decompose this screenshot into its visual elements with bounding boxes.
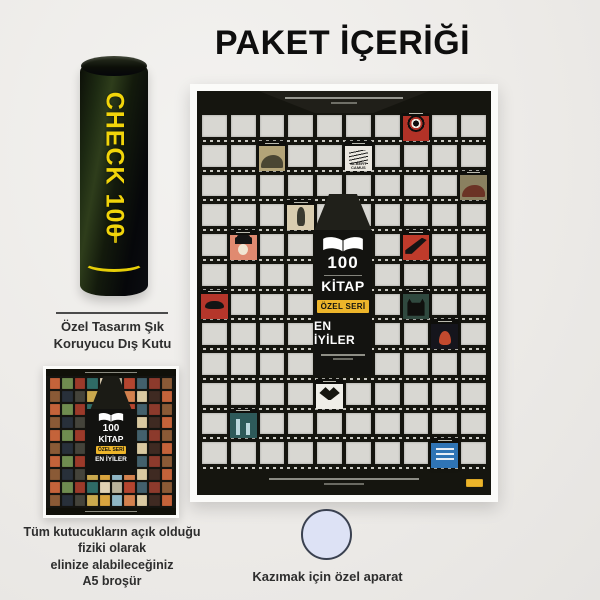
brochure-book-cell	[62, 482, 72, 493]
scratch-poster: ALBERT CAMUS 100 KİTAP ÖZEL SERİ EN İYİL…	[190, 84, 498, 502]
brochure-book-cell	[137, 391, 147, 402]
scratch-box	[202, 264, 227, 286]
scratch-box	[404, 145, 429, 167]
brochure-title-block: 100 KİTAP ÖZEL SERİ EN İYİLER	[86, 409, 135, 475]
footer-text-line	[269, 478, 419, 480]
poster-title-block: 100 KİTAP ÖZEL SERİ EN İYİLER	[314, 230, 372, 376]
scratch-box	[432, 145, 457, 167]
brochure-book-cell	[162, 469, 172, 480]
brochure-book-cell	[100, 495, 110, 506]
scratch-box	[461, 204, 486, 226]
book-cover-label: ALBERT CAMUS	[345, 162, 372, 170]
brochure-book-cell	[50, 495, 60, 506]
brochure-book-cell	[87, 482, 97, 493]
scratch-box	[461, 145, 486, 167]
brochure-book-cell	[100, 482, 110, 493]
brochure-book-cell	[50, 404, 60, 415]
scratch-box	[432, 264, 457, 286]
book-cover-header	[431, 438, 458, 443]
brochure-book-cell	[149, 456, 159, 467]
scratch-box	[404, 323, 429, 345]
scratch-box	[317, 115, 342, 137]
brochure-book-cell	[137, 430, 147, 441]
brochure-book-cell	[62, 404, 72, 415]
revealed-book-cover: ALBERT CAMUS	[345, 141, 372, 171]
brochure-book-cell	[50, 469, 60, 480]
scratch-box	[404, 264, 429, 286]
brochure-book-cell	[149, 391, 159, 402]
scratch-tool	[301, 509, 352, 560]
brochure-book-cell	[137, 378, 147, 389]
scratch-box	[202, 323, 227, 345]
scratch-box	[317, 175, 342, 197]
brochure-book-cell	[162, 430, 172, 441]
poster-row	[202, 113, 486, 139]
scratch-box	[202, 115, 227, 137]
protective-tube: CHECK 100	[80, 58, 148, 296]
quote-text-line	[285, 97, 403, 99]
revealed-book-cover	[431, 438, 458, 468]
scratch-box	[231, 175, 256, 197]
revealed-book-cover	[403, 230, 430, 260]
scratch-box	[231, 145, 256, 167]
brochure-book-cell	[162, 404, 172, 415]
brochure-book-cell	[50, 482, 60, 493]
scratch-box	[202, 353, 227, 375]
brochure-book-cell	[137, 404, 147, 415]
scratch-box	[375, 323, 400, 345]
scratch-box	[260, 383, 285, 405]
scratch-box	[231, 264, 256, 286]
brochure-title-number: 100	[103, 423, 120, 434]
poster-quote-banner	[197, 91, 491, 113]
scratch-box	[317, 413, 342, 435]
brochure-book-cell	[75, 469, 85, 480]
tube-small-print	[114, 227, 117, 243]
brochure-book-cell	[62, 430, 72, 441]
scratch-box	[260, 323, 285, 345]
poster-footer	[197, 470, 491, 495]
a5-brochure: 100 KİTAP ÖZEL SERİ EN İYİLER	[43, 366, 179, 518]
scratch-box	[432, 294, 457, 316]
scratch-box	[202, 413, 227, 435]
brochure-book-cell	[149, 443, 159, 454]
brochure-book-cell	[62, 378, 72, 389]
scratch-box	[461, 353, 486, 375]
brochure-book-cell	[137, 495, 147, 506]
scratch-box	[260, 353, 285, 375]
brochure-book-cell	[162, 391, 172, 402]
brochure-book-cell	[149, 469, 159, 480]
scratch-box	[461, 294, 486, 316]
scratch-box	[432, 353, 457, 375]
scratch-box	[461, 442, 486, 464]
scratch-box	[461, 234, 486, 256]
scratch-box	[288, 323, 313, 345]
brochure-book-cell	[124, 482, 134, 493]
scratch-box	[375, 145, 400, 167]
brochure-book-cell	[149, 417, 159, 428]
scratch-box	[260, 264, 285, 286]
poster-row	[202, 411, 486, 437]
scratch-box	[432, 115, 457, 137]
brochure-book-cell	[162, 482, 172, 493]
brochure-caption-line-4: A5 broşür	[8, 573, 216, 589]
banner-trapezoid	[197, 91, 491, 113]
scratch-box	[288, 383, 313, 405]
poster-subtitle: EN İYİLER	[314, 319, 372, 347]
footer-text-line-2	[324, 483, 364, 485]
book-cover-header	[431, 319, 458, 324]
book-cover-header	[460, 171, 487, 176]
revealed-book-cover	[316, 379, 343, 409]
brochure-book-cell	[75, 456, 85, 467]
scratch-box	[461, 115, 486, 137]
scratch-box	[231, 294, 256, 316]
book-cover-header	[345, 141, 372, 146]
scratch-box	[432, 234, 457, 256]
brochure-book-cell	[137, 443, 147, 454]
scratch-box	[231, 353, 256, 375]
brochure-book-cell	[75, 391, 85, 402]
title-divider	[324, 275, 362, 276]
book-cover-header	[230, 409, 257, 414]
scratch-box	[375, 115, 400, 137]
brochure-subtitle: EN İYİLER	[95, 456, 127, 463]
tube-yellow-ring	[83, 253, 145, 272]
scratch-box	[231, 383, 256, 405]
revealed-book-cover	[230, 230, 257, 260]
scratch-box	[461, 264, 486, 286]
revealed-book-cover	[259, 141, 286, 171]
scratch-box	[231, 323, 256, 345]
product-showcase: PAKET İÇERİĞİ CHECK 100 Özel Tasarım Şık…	[0, 0, 600, 600]
brochure-caption-line-3: elinize alabileceğiniz	[8, 557, 216, 573]
book-cover-header	[316, 379, 343, 384]
poster-title-word: KİTAP	[321, 278, 364, 295]
brochure-book-cell	[62, 443, 72, 454]
scratch-box	[288, 115, 313, 137]
ozel-seri-badge: ÖZEL SERİ	[317, 300, 370, 313]
scratch-box	[346, 442, 371, 464]
scratch-box	[202, 234, 227, 256]
tube-caption-line-2: Koruyucu Dış Kutu	[20, 336, 205, 353]
poster-row	[202, 440, 486, 466]
brochure-book-cell	[50, 378, 60, 389]
brochure-book-cell	[75, 404, 85, 415]
brochure-book-cell	[137, 417, 147, 428]
tagline-line	[321, 354, 365, 356]
scratch-box	[461, 323, 486, 345]
brochure-book-cell	[149, 482, 159, 493]
revealed-book-cover	[403, 111, 430, 141]
scratch-box	[288, 234, 313, 256]
brochure-book-cell	[75, 495, 85, 506]
scratch-box	[404, 353, 429, 375]
brochure-book-cell	[62, 495, 72, 506]
tube-body: CHECK 100	[80, 58, 148, 296]
revealed-book-cover	[431, 319, 458, 349]
scratch-box	[260, 413, 285, 435]
poster-row	[202, 381, 486, 407]
brochure-book-cell	[124, 495, 134, 506]
scratch-box	[432, 175, 457, 197]
scratch-box	[260, 175, 285, 197]
revealed-book-cover	[403, 290, 430, 320]
scratch-box	[404, 175, 429, 197]
brochure-book-cell	[50, 456, 60, 467]
brochure-book-cell	[75, 482, 85, 493]
brochure-book-cell	[62, 417, 72, 428]
scratch-box	[260, 294, 285, 316]
scratch-box	[260, 234, 285, 256]
brochure-book-cell	[75, 417, 85, 428]
tube-cap	[81, 56, 147, 76]
poster-title-number: 100	[327, 253, 358, 273]
publisher-logo	[466, 479, 483, 487]
scratch-box	[346, 383, 371, 405]
scratch-box	[231, 442, 256, 464]
brochure-book-cell	[62, 469, 72, 480]
revealed-book-cover	[460, 171, 487, 201]
scratch-box	[260, 115, 285, 137]
scratch-box	[288, 175, 313, 197]
tube-caption: Özel Tasarım Şık Koruyucu Dış Kutu	[20, 319, 205, 353]
scratch-box	[288, 413, 313, 435]
brochure-book-cell	[149, 404, 159, 415]
brochure-book-cell	[149, 430, 159, 441]
scratch-box	[375, 442, 400, 464]
scratch-box	[461, 413, 486, 435]
scratch-box	[260, 442, 285, 464]
scratch-box	[317, 442, 342, 464]
scratch-box	[375, 353, 400, 375]
tube-label: CHECK 100	[100, 92, 129, 239]
brochure-book-cell	[137, 469, 147, 480]
brochure-book-cell	[62, 391, 72, 402]
scratch-box	[346, 175, 371, 197]
revealed-book-cover	[201, 290, 228, 320]
brochure-poster: 100 KİTAP ÖZEL SERİ EN İYİLER	[46, 369, 176, 515]
scratch-box	[432, 383, 457, 405]
revealed-book-cover	[230, 409, 257, 439]
scratch-box	[432, 204, 457, 226]
brochure-book-cell	[149, 378, 159, 389]
scratch-box	[231, 204, 256, 226]
book-cover-header	[201, 290, 228, 295]
brochure-book-cell	[50, 430, 60, 441]
book-cover-header	[403, 290, 430, 295]
book-cover-header	[287, 200, 314, 205]
scratch-box	[288, 145, 313, 167]
brochure-book-cell	[162, 456, 172, 467]
scratch-box	[404, 413, 429, 435]
page-title: PAKET İÇERİĞİ	[185, 24, 500, 63]
scratch-box	[288, 264, 313, 286]
scratch-box	[404, 204, 429, 226]
scratch-box	[375, 264, 400, 286]
scratch-box	[346, 413, 371, 435]
scratch-box	[461, 383, 486, 405]
quote-attribution-line	[331, 102, 357, 104]
brochure-caption-line-1: Tüm kutucukların açık olduğu	[8, 524, 216, 540]
brochure-book-cell	[162, 495, 172, 506]
scratch-box	[202, 442, 227, 464]
scratch-box	[375, 204, 400, 226]
open-book-icon	[98, 412, 124, 423]
scratch-box	[404, 442, 429, 464]
scratch-box	[375, 175, 400, 197]
brochure-book-cell	[112, 495, 122, 506]
scratch-box	[202, 383, 227, 405]
poster-inner: ALBERT CAMUS 100 KİTAP ÖZEL SERİ EN İYİL…	[197, 91, 491, 495]
brochure-caption: Tüm kutucukların açık olduğu fiziki olar…	[8, 524, 216, 589]
brochure-book-cell	[124, 378, 134, 389]
brochure-caption-line-2: fiziki olarak	[8, 540, 216, 556]
brochure-bottom-strip	[46, 508, 176, 515]
scratch-box	[375, 383, 400, 405]
brochure-book-cell	[50, 391, 60, 402]
brochure-book-cell	[75, 378, 85, 389]
scratch-box	[231, 115, 256, 137]
brochure-book-cell	[162, 417, 172, 428]
scratch-box	[288, 442, 313, 464]
scratch-box	[288, 353, 313, 375]
scratch-box	[375, 234, 400, 256]
open-book-icon	[321, 236, 365, 253]
brochure-book-cell	[162, 443, 172, 454]
brochure-title-word: KİTAP	[99, 434, 124, 444]
scratch-box	[202, 175, 227, 197]
brochure-book-cell	[87, 378, 97, 389]
brochure-book-cell	[50, 417, 60, 428]
tube-caption-line-1: Özel Tasarım Şık	[20, 319, 205, 336]
scratch-box	[202, 145, 227, 167]
brochure-book-cell	[75, 443, 85, 454]
brochure-book-cell	[137, 456, 147, 467]
brochure-book-cell	[112, 482, 122, 493]
brochure-book-cell	[62, 456, 72, 467]
brochure-book-cell	[87, 495, 97, 506]
divider-line	[56, 312, 168, 314]
scratch-box	[432, 413, 457, 435]
book-cover-header	[259, 141, 286, 146]
scratch-box	[317, 145, 342, 167]
revealed-book-cover	[287, 200, 314, 230]
book-cover-header	[403, 230, 430, 235]
brochure-book-cell	[137, 482, 147, 493]
brochure-top-strip	[46, 369, 176, 376]
scratch-box	[346, 115, 371, 137]
scratch-box	[202, 204, 227, 226]
book-cover-header	[230, 230, 257, 235]
scratch-box	[288, 294, 313, 316]
brochure-book-cell	[50, 443, 60, 454]
brochure-book-cell	[75, 430, 85, 441]
scratch-tool-caption: Kazımak için özel aparat	[235, 569, 420, 586]
scratch-box	[404, 383, 429, 405]
scratch-box	[375, 294, 400, 316]
brochure-book-cell	[149, 495, 159, 506]
brochure-book-cell	[162, 378, 172, 389]
poster-row: ALBERT CAMUS	[202, 143, 486, 169]
scratch-box	[375, 413, 400, 435]
scratch-box	[260, 204, 285, 226]
tagline-line-2	[333, 358, 353, 360]
brochure-ozel-seri-badge: ÖZEL SERİ	[96, 446, 126, 454]
